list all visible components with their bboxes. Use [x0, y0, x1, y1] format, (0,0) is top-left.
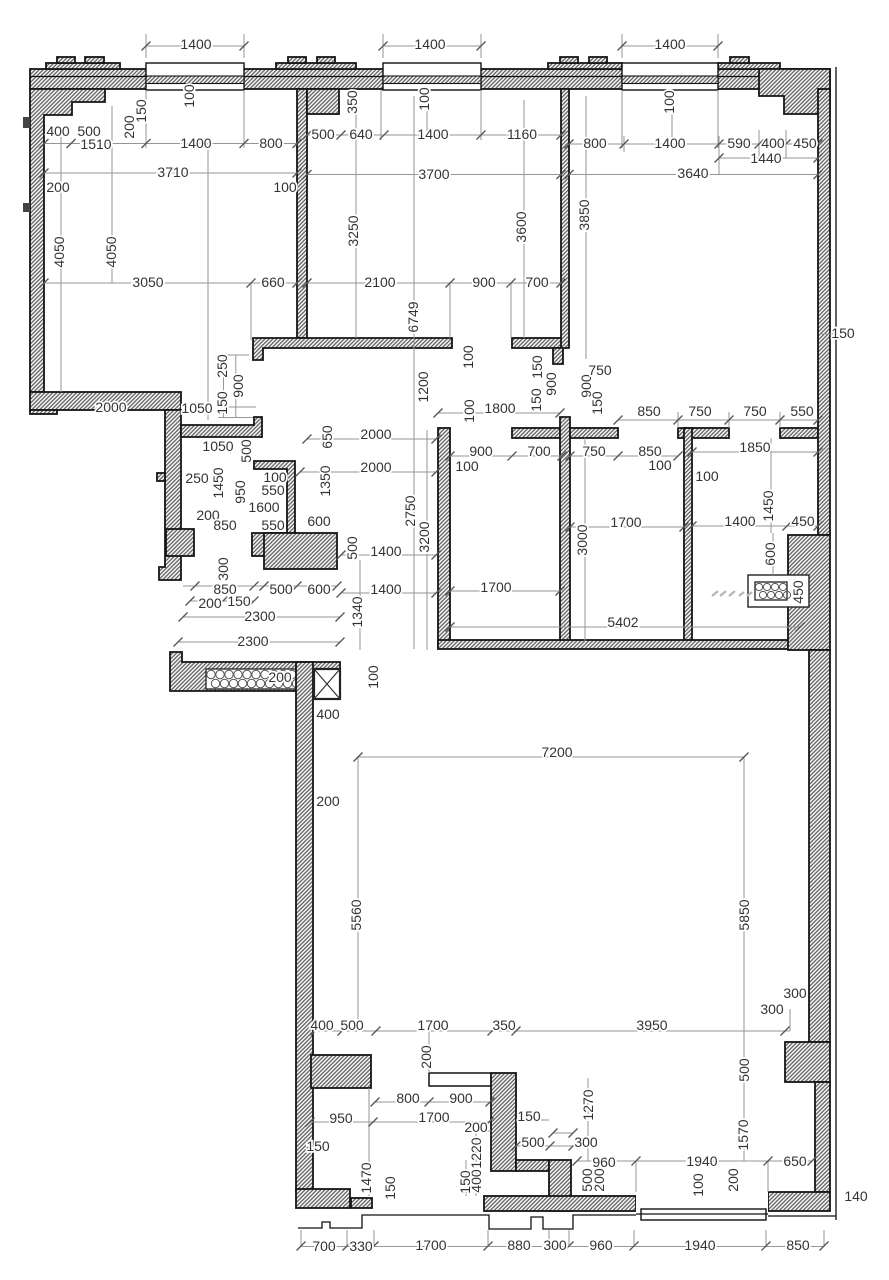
svg-text:2000: 2000	[95, 399, 126, 415]
svg-text:1400: 1400	[370, 581, 401, 597]
svg-text:3200: 3200	[416, 521, 432, 552]
svg-text:640: 640	[349, 126, 373, 142]
svg-text:1570: 1570	[735, 1119, 751, 1150]
svg-text:6749: 6749	[405, 301, 421, 332]
svg-text:750: 750	[582, 443, 606, 459]
svg-text:1400: 1400	[724, 513, 755, 529]
svg-text:1940: 1940	[686, 1153, 717, 1169]
svg-text:1700: 1700	[417, 1017, 448, 1033]
svg-text:1350: 1350	[317, 465, 333, 496]
svg-text:1050: 1050	[202, 438, 233, 454]
svg-text:200: 200	[316, 793, 340, 809]
svg-text:1400: 1400	[654, 36, 685, 52]
svg-text:960: 960	[592, 1154, 616, 1170]
svg-text:3000: 3000	[574, 524, 590, 555]
svg-text:600: 600	[762, 542, 778, 566]
svg-text:7200: 7200	[541, 744, 572, 760]
svg-text:330: 330	[349, 1238, 373, 1254]
svg-text:650: 650	[783, 1153, 807, 1169]
svg-text:2300: 2300	[237, 633, 268, 649]
svg-text:300: 300	[543, 1237, 567, 1253]
svg-text:150: 150	[214, 391, 230, 415]
svg-text:500: 500	[340, 1017, 364, 1033]
svg-text:1800: 1800	[484, 400, 515, 416]
svg-text:100: 100	[690, 1173, 706, 1197]
svg-text:850: 850	[786, 1237, 810, 1253]
svg-text:550: 550	[261, 517, 285, 533]
svg-text:1160: 1160	[507, 126, 537, 142]
svg-text:500: 500	[344, 536, 360, 560]
svg-text:900: 900	[230, 374, 246, 398]
svg-text:200: 200	[591, 1168, 607, 1192]
svg-text:750: 750	[588, 362, 612, 378]
svg-text:660: 660	[261, 274, 285, 290]
svg-text:5402: 5402	[607, 614, 638, 630]
svg-text:100: 100	[416, 87, 432, 111]
svg-text:200: 200	[418, 1045, 434, 1069]
svg-text:150: 150	[517, 1108, 541, 1124]
svg-text:3950: 3950	[636, 1017, 667, 1033]
svg-text:3600: 3600	[513, 211, 529, 242]
svg-text:150: 150	[457, 1170, 473, 1194]
svg-text:2300: 2300	[244, 608, 275, 624]
svg-text:550: 550	[261, 482, 285, 498]
svg-text:1850: 1850	[739, 439, 770, 455]
svg-text:1700: 1700	[415, 1237, 446, 1253]
svg-text:750: 750	[743, 403, 767, 419]
svg-text:450: 450	[791, 513, 815, 529]
svg-text:150: 150	[306, 1138, 330, 1154]
svg-text:1400: 1400	[654, 135, 685, 151]
svg-text:200: 200	[268, 669, 292, 685]
svg-text:850: 850	[213, 517, 237, 533]
svg-text:2000: 2000	[360, 459, 391, 475]
svg-text:750: 750	[688, 403, 712, 419]
svg-text:300: 300	[215, 557, 231, 581]
svg-text:100: 100	[181, 84, 197, 108]
svg-text:500: 500	[238, 439, 254, 463]
svg-text:250: 250	[214, 354, 230, 378]
svg-text:100: 100	[273, 179, 297, 195]
svg-text:3250: 3250	[345, 215, 361, 246]
svg-text:3050: 3050	[132, 274, 163, 290]
svg-text:700: 700	[525, 274, 549, 290]
svg-text:1050: 1050	[181, 400, 212, 416]
svg-text:100: 100	[455, 458, 479, 474]
svg-text:400: 400	[46, 123, 70, 139]
svg-text:1450: 1450	[760, 490, 776, 521]
svg-text:200: 200	[725, 1168, 741, 1192]
svg-text:590: 590	[727, 135, 751, 151]
svg-text:900: 900	[472, 274, 496, 290]
svg-text:4050: 4050	[51, 236, 67, 267]
svg-text:1270: 1270	[580, 1089, 596, 1120]
svg-text:150: 150	[227, 593, 251, 609]
svg-text:1400: 1400	[180, 36, 211, 52]
svg-text:2000: 2000	[360, 426, 391, 442]
svg-text:3640: 3640	[677, 165, 708, 181]
svg-text:550: 550	[790, 403, 814, 419]
svg-text:150: 150	[831, 325, 855, 341]
svg-text:150: 150	[528, 388, 544, 412]
svg-text:3710: 3710	[157, 164, 188, 180]
svg-text:1450: 1450	[210, 467, 226, 498]
svg-text:900: 900	[469, 443, 493, 459]
svg-text:250: 250	[185, 470, 209, 486]
svg-text:880: 880	[507, 1237, 531, 1253]
svg-text:100: 100	[648, 457, 672, 473]
svg-text:1700: 1700	[418, 1109, 449, 1125]
svg-text:150: 150	[382, 1176, 398, 1200]
svg-text:1700: 1700	[480, 579, 511, 595]
svg-text:950: 950	[232, 480, 248, 504]
svg-text:450: 450	[790, 580, 806, 604]
svg-text:500: 500	[269, 581, 293, 597]
svg-text:150: 150	[589, 391, 605, 415]
svg-text:800: 800	[583, 135, 607, 151]
svg-text:1440: 1440	[750, 150, 781, 166]
svg-text:950: 950	[329, 1110, 353, 1126]
svg-text:1400: 1400	[417, 126, 448, 142]
svg-text:1400: 1400	[370, 543, 401, 559]
svg-text:500: 500	[311, 126, 335, 142]
svg-text:700: 700	[527, 443, 551, 459]
svg-text:600: 600	[307, 513, 331, 529]
svg-text:1400: 1400	[180, 135, 211, 151]
svg-text:400: 400	[316, 706, 340, 722]
svg-text:1340: 1340	[349, 596, 365, 627]
svg-text:100: 100	[661, 90, 677, 114]
svg-text:200: 200	[464, 1119, 488, 1135]
svg-text:150: 150	[133, 99, 149, 123]
svg-text:450: 450	[793, 135, 817, 151]
svg-text:800: 800	[259, 135, 283, 151]
svg-text:100: 100	[695, 468, 719, 484]
svg-text:300: 300	[760, 1001, 784, 1017]
svg-text:5850: 5850	[736, 899, 752, 930]
svg-text:1220: 1220	[468, 1137, 484, 1168]
svg-text:2100: 2100	[364, 274, 395, 290]
svg-text:3700: 3700	[418, 166, 449, 182]
svg-text:1470: 1470	[358, 1162, 374, 1193]
svg-text:850: 850	[637, 403, 661, 419]
svg-text:100: 100	[365, 665, 381, 689]
svg-text:1940: 1940	[684, 1237, 715, 1253]
svg-text:200: 200	[198, 595, 222, 611]
svg-text:1700: 1700	[610, 514, 641, 530]
svg-text:800: 800	[396, 1090, 420, 1106]
svg-text:200: 200	[46, 179, 70, 195]
svg-text:100: 100	[461, 399, 477, 423]
svg-text:1600: 1600	[248, 499, 279, 515]
svg-text:4050: 4050	[103, 236, 119, 267]
svg-text:1200: 1200	[415, 371, 431, 402]
svg-text:400: 400	[310, 1017, 334, 1033]
svg-text:900: 900	[449, 1090, 473, 1106]
svg-text:350: 350	[492, 1017, 516, 1033]
svg-text:100: 100	[460, 345, 476, 369]
svg-text:5560: 5560	[348, 899, 364, 930]
svg-text:350: 350	[344, 90, 360, 114]
svg-text:650: 650	[319, 425, 335, 449]
svg-text:960: 960	[589, 1237, 613, 1253]
svg-text:600: 600	[307, 581, 331, 597]
svg-text:500: 500	[736, 1058, 752, 1082]
svg-text:140: 140	[844, 1188, 868, 1204]
svg-text:700: 700	[312, 1238, 336, 1254]
svg-text:900: 900	[543, 372, 559, 396]
svg-text:500: 500	[521, 1134, 545, 1150]
svg-text:3850: 3850	[576, 199, 592, 230]
svg-text:400: 400	[761, 135, 785, 151]
svg-text:300: 300	[783, 985, 807, 1001]
svg-text:300: 300	[574, 1134, 598, 1150]
svg-text:1510: 1510	[80, 136, 111, 152]
svg-text:1400: 1400	[414, 36, 445, 52]
